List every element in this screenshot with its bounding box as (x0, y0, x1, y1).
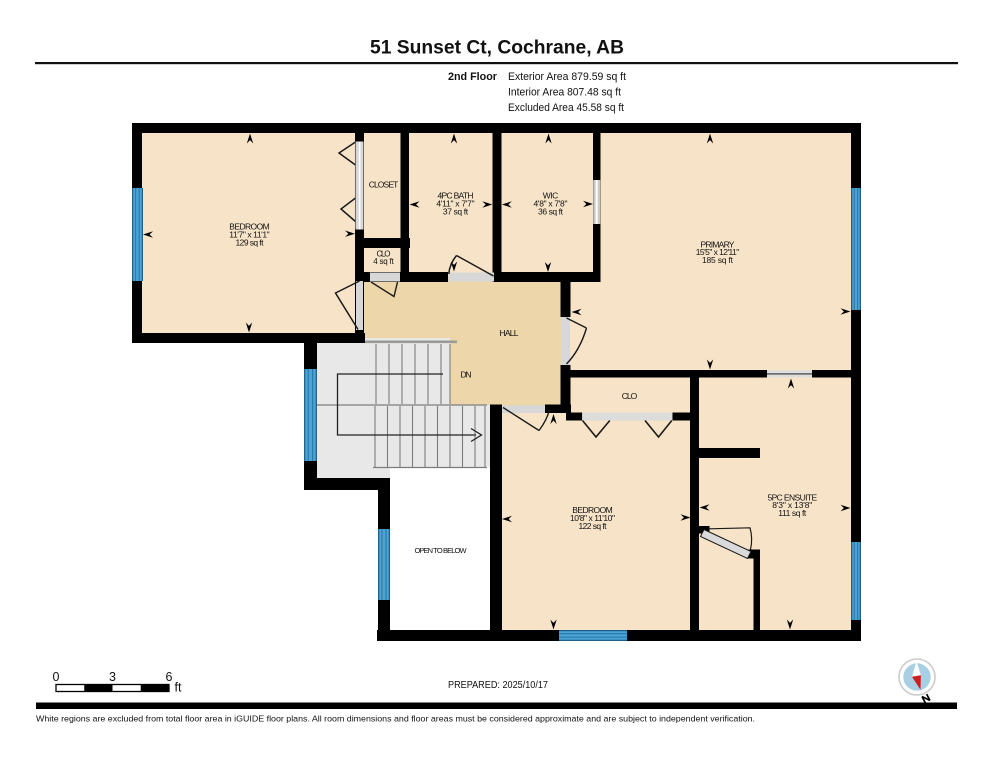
svg-text:37 sq ft: 37 sq ft (443, 206, 469, 216)
svg-text:36 sq ft: 36 sq ft (538, 206, 564, 216)
svg-text:OPEN TO BELOW: OPEN TO BELOW (414, 546, 467, 555)
svg-text:Interior Area 807.48 sq ft: Interior Area 807.48 sq ft (508, 87, 621, 99)
svg-text:111 sq ft: 111 sq ft (778, 508, 807, 518)
svg-text:129 sq ft: 129 sq ft (236, 237, 265, 247)
svg-text:White regions are excluded fro: White regions are excluded from total fl… (36, 714, 755, 724)
svg-text:HALL: HALL (500, 328, 519, 338)
svg-text:PREPARED: 2025/10/17: PREPARED: 2025/10/17 (448, 680, 548, 691)
svg-text:Exterior Area 879.59 sq ft: Exterior Area 879.59 sq ft (508, 71, 626, 83)
svg-text:122 sq ft: 122 sq ft (579, 521, 608, 531)
svg-text:DN: DN (461, 370, 472, 380)
svg-text:CLOSET: CLOSET (369, 180, 399, 190)
svg-text:CLO: CLO (622, 391, 638, 401)
svg-text:6: 6 (166, 670, 173, 684)
svg-text:ft: ft (175, 681, 182, 695)
svg-text:3: 3 (109, 670, 116, 684)
svg-text:4 sq ft: 4 sq ft (373, 257, 394, 266)
svg-text:185 sq ft: 185 sq ft (702, 255, 734, 265)
svg-text:51 Sunset Ct, Cochrane, AB: 51 Sunset Ct, Cochrane, AB (370, 37, 624, 59)
svg-text:0: 0 (53, 670, 60, 684)
svg-text:2nd Floor: 2nd Floor (448, 71, 498, 83)
svg-text:Excluded Area 45.58 sq ft: Excluded Area 45.58 sq ft (508, 102, 624, 114)
